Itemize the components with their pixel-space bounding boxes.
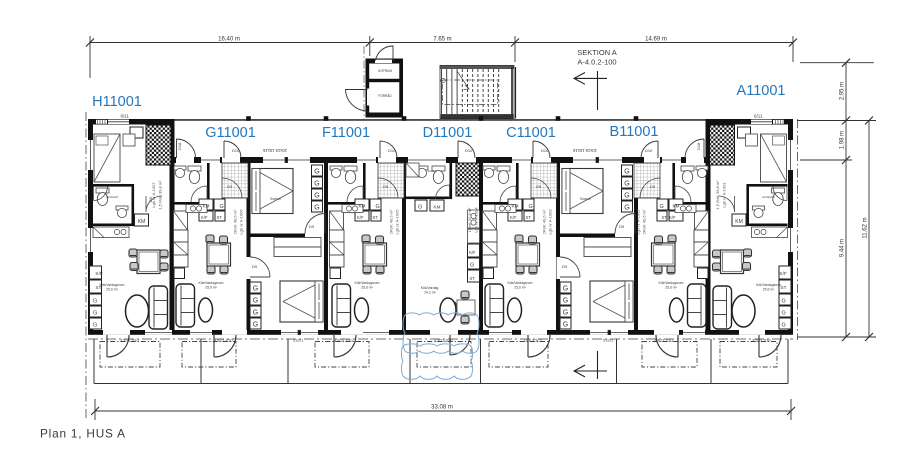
svg-text:wc/dusch: wc/dusch	[762, 195, 775, 199]
svg-text:2RoK 49,6 m²: 2RoK 49,6 m²	[389, 209, 394, 234]
svg-text:Lgh nr A-1006: Lgh nr A-1006	[239, 209, 244, 235]
svg-text:3,5/21 D10: 3,5/21 D10	[120, 339, 139, 343]
svg-text:Lgh nr A-1007: Lgh nr A-1007	[151, 182, 156, 208]
svg-text:10x15 10x15: 10x15 10x15	[262, 148, 287, 153]
svg-text:Lgh nr A-1003: Lgh nr A-1003	[548, 209, 553, 235]
svg-text:6/11: 6/11	[754, 114, 763, 119]
svg-text:KM: KM	[138, 219, 146, 225]
svg-text:D10: D10	[388, 148, 396, 153]
svg-text:G: G	[660, 204, 664, 210]
svg-text:KM: KM	[512, 203, 519, 208]
svg-text:3,5/21 D10: 3,5/21 D10	[434, 339, 453, 343]
svg-text:Kök/Vardagsrum: Kök/Vardagsrum	[354, 281, 379, 285]
svg-text:D9: D9	[148, 196, 153, 202]
svg-text:Kök/Vardagsrum: Kök/Vardagsrum	[507, 281, 532, 285]
svg-text:Sovrum: Sovrum	[580, 197, 591, 201]
svg-text:ST: ST	[217, 215, 223, 220]
svg-text:D9: D9	[562, 264, 568, 269]
svg-text:1RoK 32,4 m²: 1RoK 32,4 m²	[467, 207, 472, 232]
svg-text:Kök/Vardagsrum: Kök/Vardagsrum	[756, 283, 781, 287]
svg-text:D9: D9	[536, 184, 542, 189]
svg-text:H11001: H11001	[92, 94, 142, 110]
svg-text:D9: D9	[650, 184, 656, 189]
svg-text:2.95 m: 2.95 m	[840, 82, 846, 100]
svg-text:3,5/21 D10: 3,5/21 D10	[214, 339, 233, 343]
svg-text:G: G	[220, 204, 224, 210]
svg-text:1,5 RoK 39,8 m²: 1,5 RoK 39,8 m²	[715, 180, 720, 210]
svg-text:D10: D10	[645, 148, 653, 153]
svg-text:Sovrum: Sovrum	[270, 197, 281, 201]
svg-text:KM: KM	[673, 203, 680, 208]
svg-text:ST: ST	[373, 215, 379, 220]
svg-text:FÖRRÅD: FÖRRÅD	[378, 93, 392, 98]
svg-text:D18: D18	[177, 142, 182, 150]
svg-text:G11001: G11001	[205, 125, 256, 141]
svg-text:3,5/21 D10: 3,5/21 D10	[654, 339, 673, 343]
svg-text:51x21: 51x21	[603, 339, 613, 343]
svg-text:KM: KM	[359, 203, 366, 208]
svg-text:F11001: F11001	[322, 125, 370, 141]
svg-text:D10: D10	[232, 148, 240, 153]
svg-text:G: G	[93, 299, 97, 305]
svg-text:Kök/Vardagsrum: Kök/Vardagsrum	[99, 283, 124, 287]
svg-text:D10 3,5/21: D10 3,5/21	[524, 339, 543, 343]
svg-text:G: G	[418, 204, 422, 210]
svg-text:Plan 1, HUS A: Plan 1, HUS A	[40, 427, 126, 441]
svg-text:D18: D18	[696, 142, 701, 150]
svg-text:1,5 RoK 39,8 m²: 1,5 RoK 39,8 m²	[158, 180, 163, 210]
svg-text:G: G	[782, 323, 786, 329]
svg-text:Lgh nr A-1004: Lgh nr A-1004	[474, 207, 479, 233]
svg-text:Kök/Vardagsrum: Kök/Vardagsrum	[198, 281, 223, 285]
svg-text:6/11: 6/11	[121, 114, 130, 119]
svg-text:2RoK 49,6 m²: 2RoK 49,6 m²	[233, 209, 238, 234]
svg-text:Kök/Vardagsrum: Kök/Vardagsrum	[658, 281, 683, 285]
svg-text:24,2 m²: 24,2 m²	[424, 291, 436, 295]
svg-text:D9: D9	[619, 224, 625, 229]
svg-text:7.65 m: 7.65 m	[433, 37, 451, 43]
svg-text:25,6 m²: 25,6 m²	[665, 286, 677, 290]
svg-text:D10: D10	[465, 148, 473, 153]
svg-text:ST: ST	[470, 276, 476, 281]
svg-text:9.44 m: 9.44 m	[840, 239, 846, 257]
svg-text:14.69 m: 14.69 m	[645, 37, 667, 43]
svg-text:wc/d: wc/d	[428, 169, 435, 173]
svg-text:SOPRUM: SOPRUM	[378, 69, 392, 73]
svg-text:ST: ST	[526, 215, 532, 220]
svg-text:16.40 m: 16.40 m	[218, 37, 240, 43]
svg-text:A11001: A11001	[737, 83, 786, 99]
svg-text:G: G	[470, 263, 474, 269]
svg-text:KM: KM	[434, 204, 441, 209]
svg-text:G: G	[93, 311, 97, 317]
svg-text:KM: KM	[203, 203, 210, 208]
svg-text:G: G	[782, 299, 786, 305]
svg-text:KM: KM	[735, 219, 743, 225]
svg-text:51x21: 51x21	[293, 339, 303, 343]
svg-text:C11001: C11001	[506, 125, 556, 141]
svg-text:25,6 m²: 25,6 m²	[361, 286, 373, 290]
svg-text:25,6 m²: 25,6 m²	[514, 286, 526, 290]
svg-text:D9: D9	[383, 184, 389, 189]
svg-text:ST: ST	[662, 215, 668, 220]
svg-text:K/F: K/F	[201, 215, 208, 220]
svg-text:K/F: K/F	[357, 215, 364, 220]
svg-text:Lgh nr A-1002: Lgh nr A-1002	[636, 209, 641, 235]
svg-text:K/F: K/F	[780, 271, 787, 276]
svg-text:33.08 m: 33.08 m	[431, 405, 453, 411]
svg-text:ST: ST	[781, 285, 787, 290]
svg-text:G: G	[376, 204, 380, 210]
svg-text:K/F: K/F	[510, 215, 517, 220]
svg-text:D9: D9	[227, 184, 233, 189]
svg-text:A-4.0.2-100: A-4.0.2-100	[577, 58, 616, 67]
svg-text:D10: D10	[541, 148, 549, 153]
svg-text:25,6 m²: 25,6 m²	[106, 288, 118, 292]
svg-text:3,5/21 D10: 3,5/21 D10	[334, 339, 353, 343]
svg-text:wc/dusch: wc/dusch	[106, 195, 119, 199]
svg-text:1.98 m: 1.98 m	[840, 131, 846, 149]
svg-text:2RoK 49,6 m²: 2RoK 49,6 m²	[642, 209, 647, 234]
svg-text:3,5/21 D10: 3,5/21 D10	[752, 339, 771, 343]
svg-text:2RoK 49,6 m²: 2RoK 49,6 m²	[542, 209, 547, 234]
svg-text:D9: D9	[309, 224, 315, 229]
svg-text:B11001: B11001	[610, 124, 659, 140]
svg-text:K/F: K/F	[96, 271, 103, 276]
svg-text:SEKTION A: SEKTION A	[577, 48, 617, 57]
svg-text:D11001: D11001	[423, 125, 473, 141]
svg-text:K/F: K/F	[669, 215, 676, 220]
svg-text:K/F: K/F	[469, 250, 476, 255]
svg-text:10x15 10x15: 10x15 10x15	[572, 148, 597, 153]
svg-text:G: G	[529, 204, 533, 210]
svg-text:G: G	[93, 323, 97, 329]
svg-text:25,6 m²: 25,6 m²	[205, 286, 217, 290]
svg-text:Lgh nr A-1001: Lgh nr A-1001	[722, 182, 727, 208]
svg-text:25,6 m²: 25,6 m²	[763, 288, 775, 292]
svg-text:G: G	[782, 311, 786, 317]
svg-text:D9: D9	[252, 264, 258, 269]
svg-text:Lgh nr A-1005: Lgh nr A-1005	[395, 209, 400, 235]
svg-text:Kök/Vardag.: Kök/Vardag.	[421, 286, 439, 290]
svg-text:11.62 m: 11.62 m	[863, 217, 869, 238]
